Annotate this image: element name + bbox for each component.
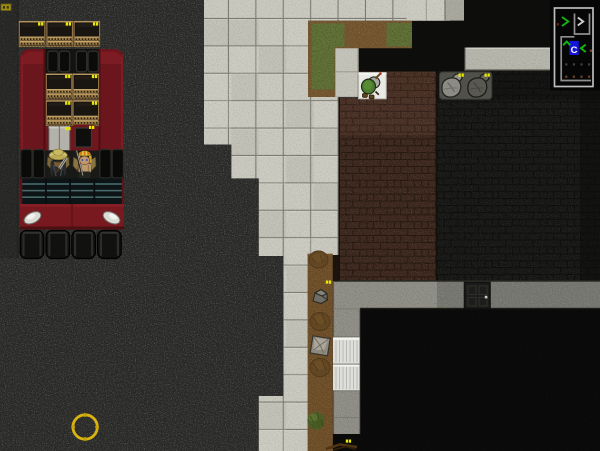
svg-text:C: C: [571, 45, 578, 56]
